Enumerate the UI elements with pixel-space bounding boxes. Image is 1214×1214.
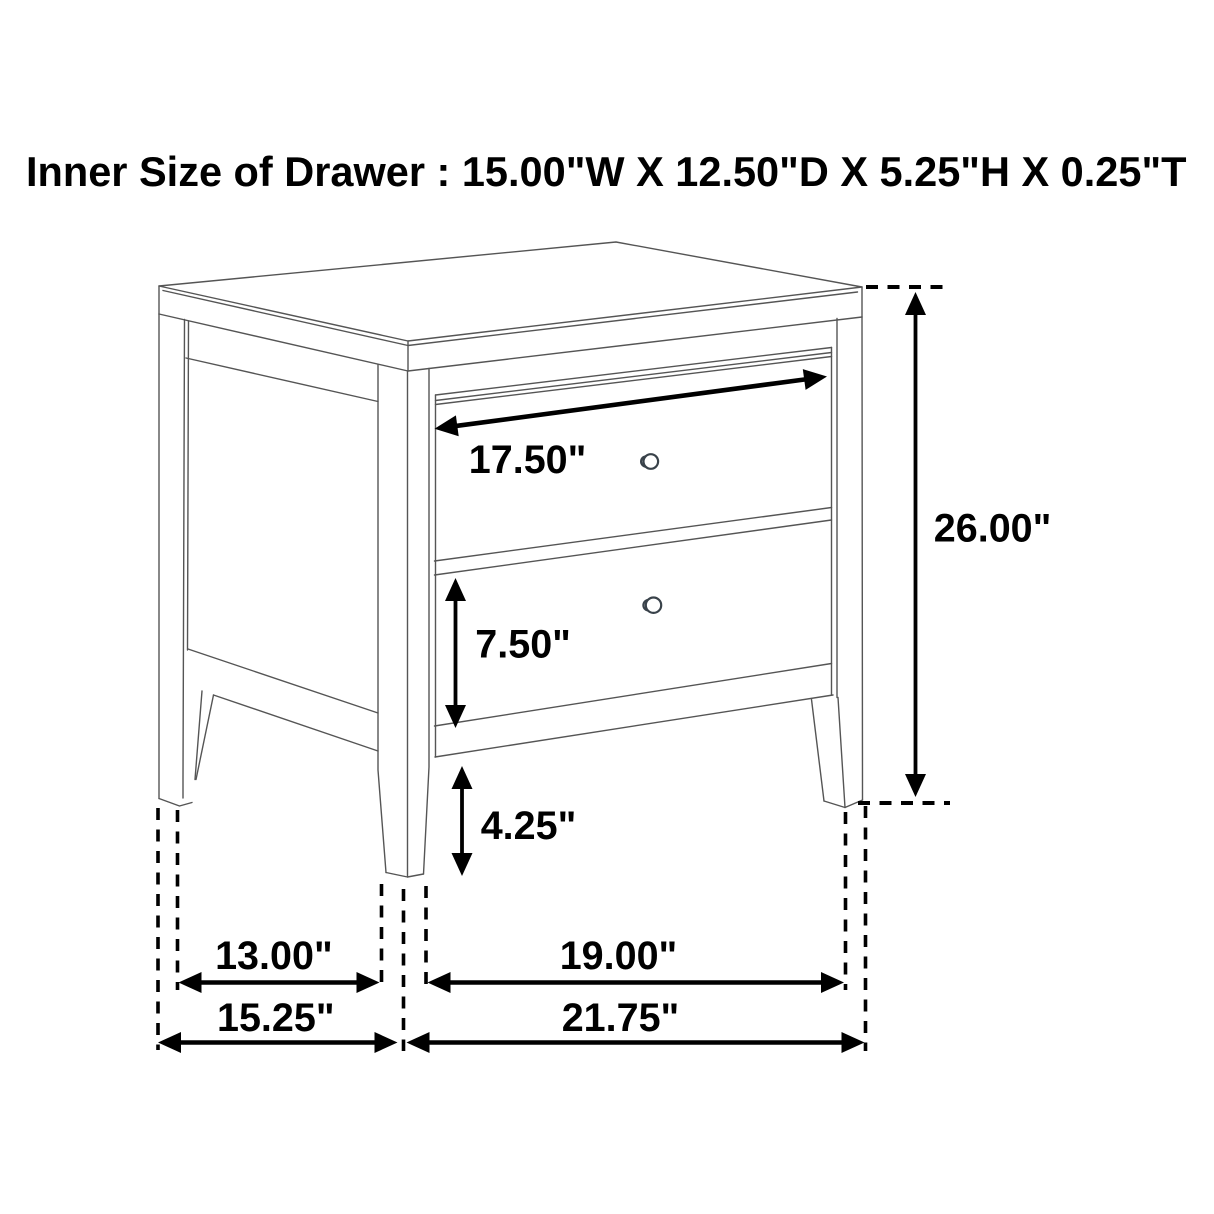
svg-text:4.25": 4.25" <box>481 804 577 848</box>
svg-text:13.00": 13.00" <box>215 934 333 978</box>
svg-text:Inner Size of Drawer : 15.00"W: Inner Size of Drawer : 15.00"W X 12.50"D… <box>26 148 1186 195</box>
svg-text:15.25": 15.25" <box>217 996 335 1040</box>
svg-text:17.50": 17.50" <box>469 438 587 482</box>
svg-text:19.00": 19.00" <box>560 934 678 978</box>
svg-text:7.50": 7.50" <box>475 623 571 667</box>
svg-text:26.00": 26.00" <box>934 506 1052 550</box>
svg-text:21.75": 21.75" <box>562 996 680 1040</box>
